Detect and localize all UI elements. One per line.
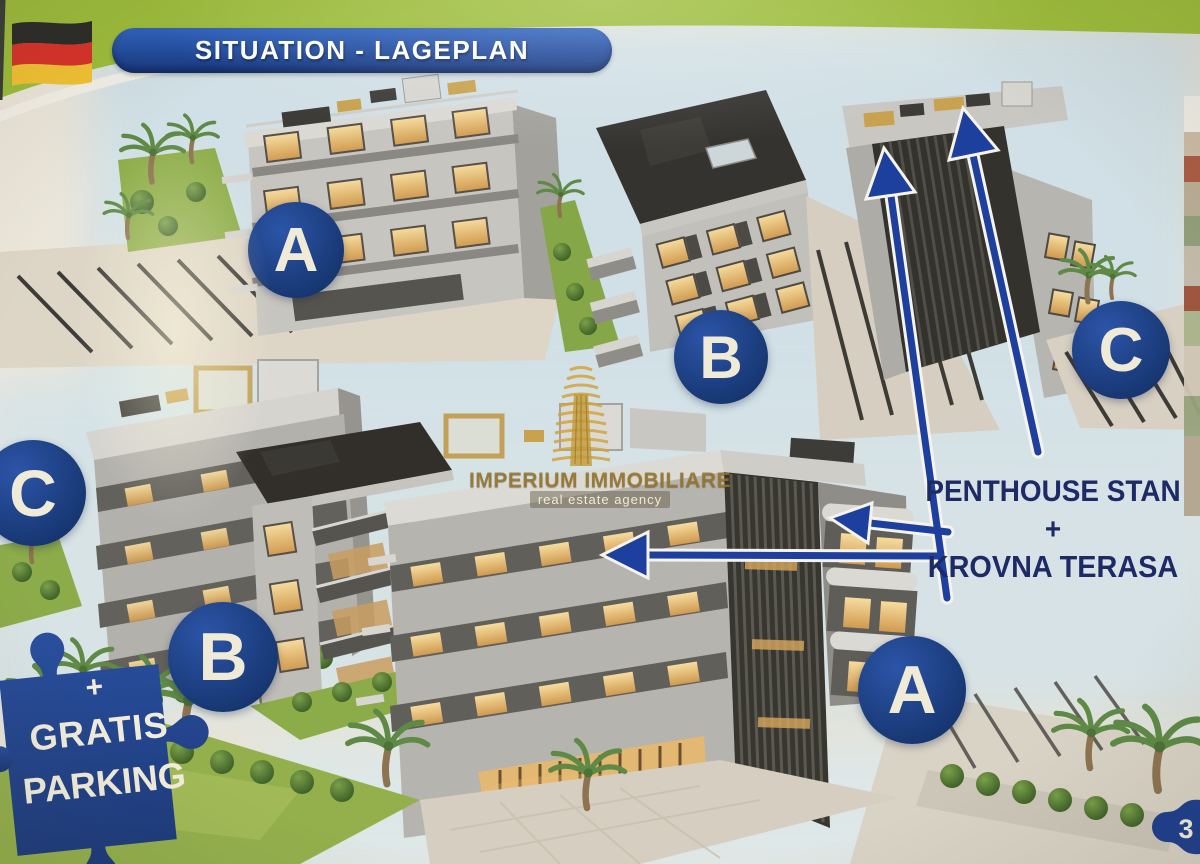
- brochure-page: SITUATION - LAGEPLAN A B C C B A IMPERIU…: [0, 0, 1200, 864]
- adjacent-page-sliver: [1184, 96, 1200, 516]
- page-number: 3: [1172, 814, 1200, 845]
- corner-puzzle-icon: [0, 0, 1200, 864]
